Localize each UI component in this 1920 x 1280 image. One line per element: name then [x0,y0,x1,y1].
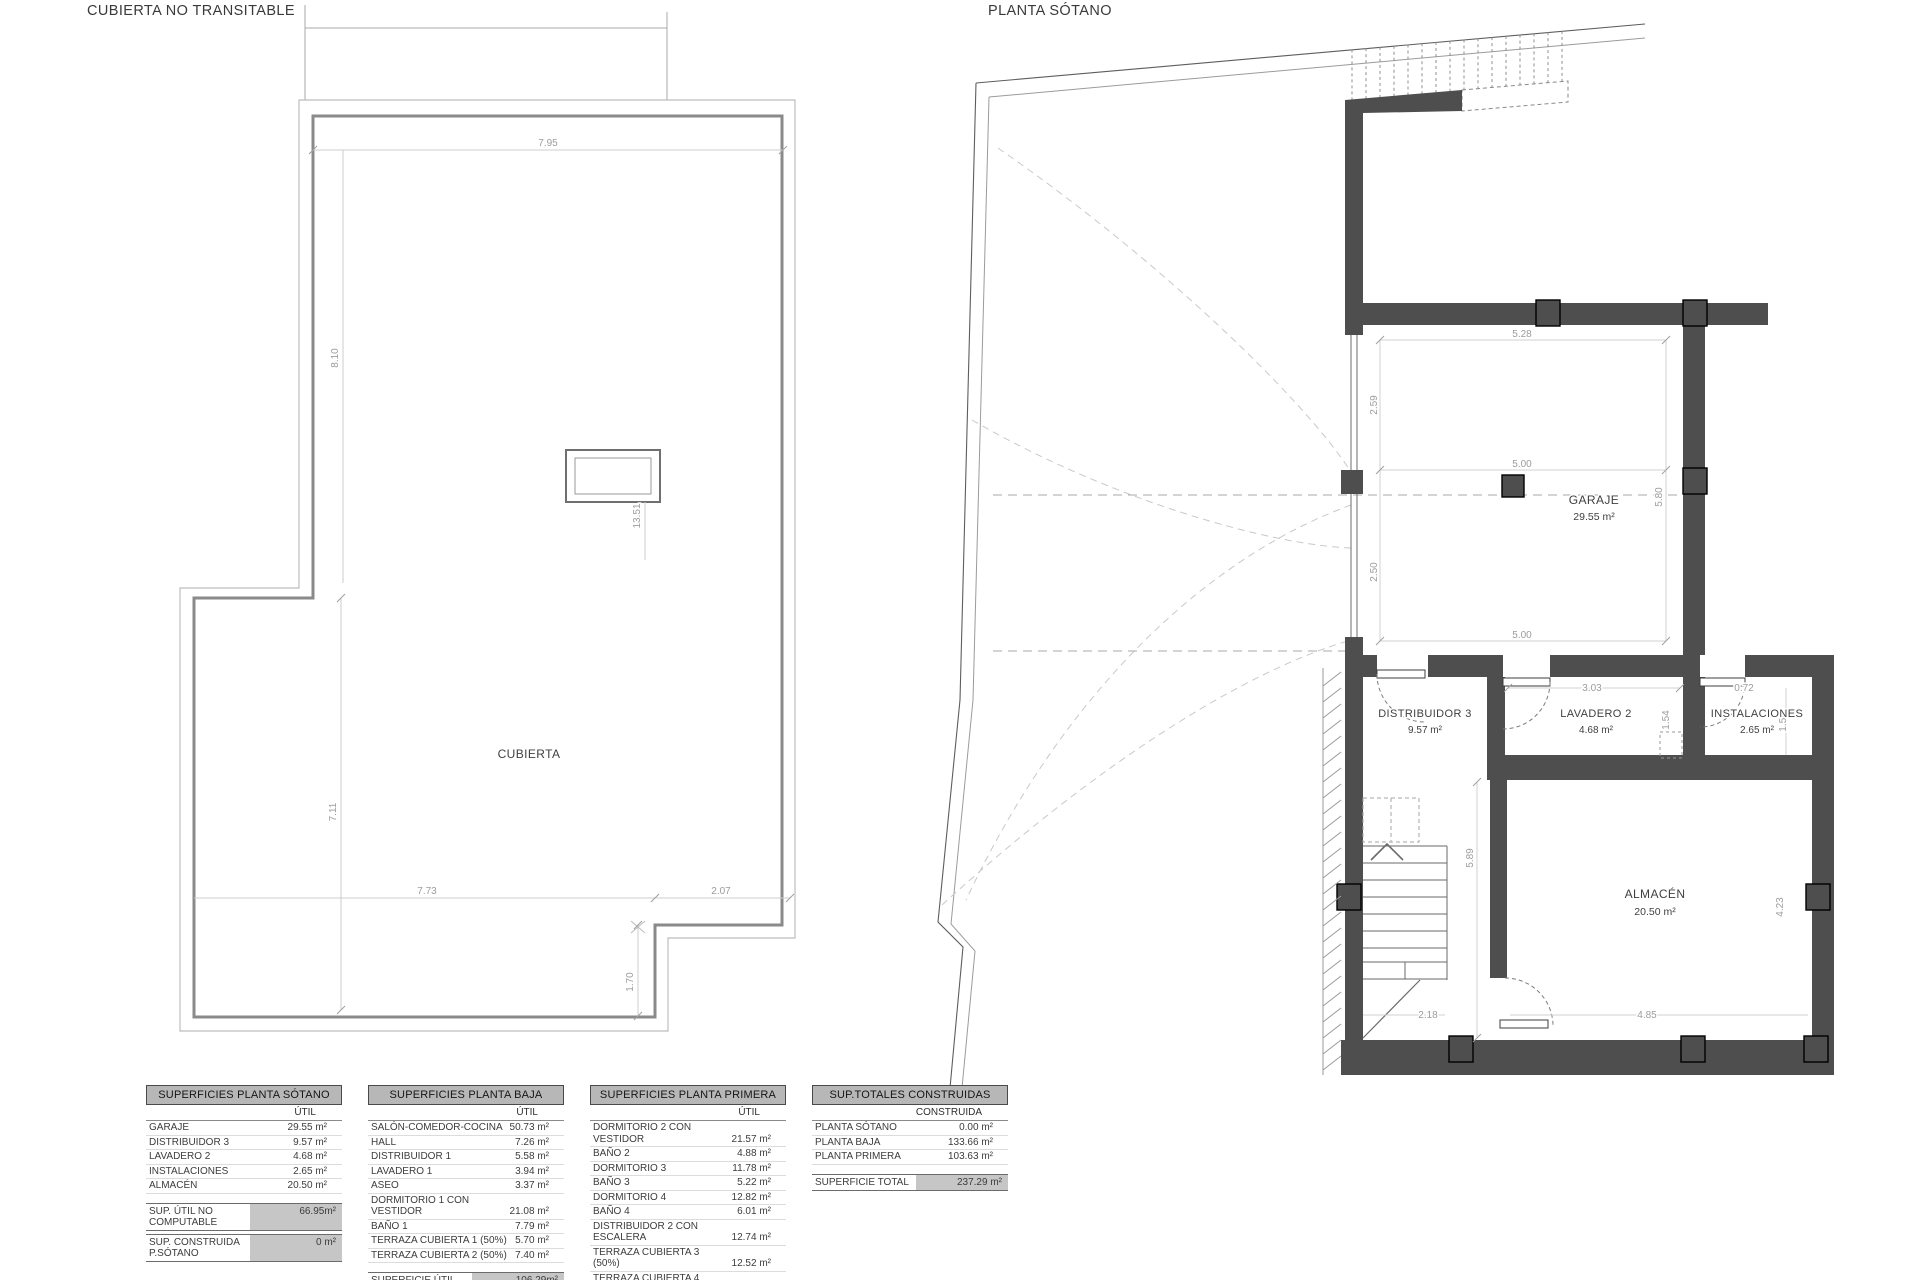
room-area-almacen: 20.50 m² [1634,906,1676,918]
row-label: TERRAZA CUBIERTA 3 (50%) [593,1247,732,1270]
row-label: PLANTA BAJA [815,1137,948,1149]
cubierta-plan: 7.95 8.10 13.51 7.11 7.73 2.07 1.70 CUBI… [180,5,795,1031]
row-label: DORMITORIO 1 CON VESTIDOR [371,1195,510,1218]
dim-label: 2.18 [1418,1010,1438,1021]
table-superficies-planta-baja: SUPERFICIES PLANTA BAJAÚTILSALÓN-COMEDOR… [368,1085,564,1280]
table-total-row: SUPERFICIE TOTAL237.29 m² [812,1174,1008,1191]
appliance-box [1660,732,1682,758]
dim-ticks [309,146,1684,1042]
table-column-header: CONSTRUIDA [812,1105,1008,1121]
table-row: PLANTA SÓTANO0.00 m² [812,1121,1008,1136]
table-row: DORMITORIO 311.78 m² [590,1162,786,1177]
dim-label: 8.10 [330,348,341,368]
row-label: BAÑO 2 [593,1148,737,1160]
row-value: 29.55 m² [288,1122,339,1134]
dim-label: 4.23 [1775,897,1786,917]
row-value: 12.82 m² [732,1192,783,1204]
drawing-sheet: CUBIERTA NO TRANSITABLE PLANTA SÓTANO [0,0,1920,1280]
row-label: DORMITORIO 4 [593,1192,732,1204]
table-row: BAÑO 24.88 m² [590,1147,786,1162]
dim-label: 7.73 [417,886,437,897]
dim-label: 5.80 [1654,487,1665,507]
row-value: 4.68 m² [293,1151,339,1163]
table-column-header: ÚTIL [146,1105,342,1121]
site-boundary [938,24,1645,1088]
table-row: PLANTA BAJA133.66 m² [812,1136,1008,1151]
room-label-almacen: ALMACÉN [1625,886,1686,901]
dim-label: 5.28 [1512,329,1532,340]
driveway-arcs [942,148,1351,905]
table-row: DORMITORIO 2 CON VESTIDOR21.57 m² [590,1121,786,1147]
total-value: 106.29m² [472,1273,564,1280]
total-label: SUPERFICIE ÚTIL P.BAJA [368,1273,472,1280]
dim-label: 5.00 [1512,630,1532,641]
row-label: TERRAZA CUBIERTA 2 (50%) [371,1250,515,1262]
row-value: 5.22 m² [737,1177,783,1189]
table-totals: SUP. ÚTIL NO COMPUTABLE66.95m²SUP. CONST… [146,1203,342,1262]
dim-label: 1.54 [1661,710,1672,730]
row-label: BAÑO 1 [371,1221,515,1233]
row-value: 9.57 m² [293,1137,339,1149]
roof-outline-outer [180,100,795,1031]
row-value: 11.78 m² [732,1163,783,1175]
row-label: ALMACÉN [149,1180,288,1192]
table-row: LAVADERO 24.68 m² [146,1150,342,1165]
table-row: TERRAZA CUBIERTA 4 (50%)12.91 m² [590,1272,786,1280]
room-label-cubierta: CUBIERTA [498,747,561,761]
dim-label: 3.03 [1582,683,1602,694]
table-title: SUPERFICIES PLANTA BAJA [368,1085,564,1105]
row-value: 7.26 m² [515,1137,561,1149]
row-value: 12.52 m² [732,1258,783,1270]
table-row: DISTRIBUIDOR 15.58 m² [368,1150,564,1165]
hatch-band-frame [1462,81,1568,111]
dim-label: 5.00 [1512,459,1532,470]
table-row: PLANTA PRIMERA103.63 m² [812,1150,1008,1165]
room-area-garaje: 29.55 m² [1573,511,1615,523]
row-label: PLANTA PRIMERA [815,1151,948,1163]
row-value: 6.01 m² [737,1206,783,1218]
row-label: GARAJE [149,1122,288,1134]
table-row: BAÑO 35.22 m² [590,1176,786,1191]
row-value: 5.58 m² [515,1151,561,1163]
table-row: ALMACÉN20.50 m² [146,1179,342,1194]
table-total-row: SUP. ÚTIL NO COMPUTABLE66.95m² [146,1203,342,1231]
table-column-header: ÚTIL [368,1105,564,1121]
staircase [1363,798,1447,1038]
row-label: DORMITORIO 3 [593,1163,732,1175]
total-label: SUP. CONSTRUIDA P.SÓTANO [146,1235,250,1261]
table-title: SUP.TOTALES CONSTRUIDAS [812,1085,1008,1105]
total-value: 0 m² [250,1235,342,1261]
row-value: 2.65 m² [293,1166,339,1178]
dim-label: 4.85 [1637,1010,1657,1021]
skylight [566,450,660,502]
row-value: 50.73 m² [510,1122,561,1134]
table-row: ASEO3.37 m² [368,1179,564,1194]
table-totals: SUPERFICIE ÚTIL P.BAJA106.29m²SUP. CONST… [368,1272,564,1280]
table-row: HALL7.26 m² [368,1136,564,1151]
row-value: 4.88 m² [737,1148,783,1160]
table-totals: SUPERFICIE TOTAL237.29 m² [812,1174,1008,1191]
row-value: 20.50 m² [288,1180,339,1192]
table-row: TERRAZA CUBIERTA 3 (50%)12.52 m² [590,1246,786,1272]
table-column-header: ÚTIL [590,1105,786,1121]
table-sup-totales-construidas: SUP.TOTALES CONSTRUIDASCONSTRUIDAPLANTA … [812,1085,1008,1194]
row-value: 21.08 m² [510,1206,561,1218]
table-total-row: SUP. CONSTRUIDA P.SÓTANO0 m² [146,1234,342,1262]
row-label: ASEO [371,1180,515,1192]
row-label: DORMITORIO 2 CON VESTIDOR [593,1122,732,1145]
table-row: TERRAZA CUBIERTA 2 (50%)7.40 m² [368,1249,564,1264]
room-area-lavadero2: 4.68 m² [1579,725,1614,736]
table-title: SUPERFICIES PLANTA SÓTANO [146,1085,342,1105]
row-label: BAÑO 4 [593,1206,737,1218]
table-row: DORMITORIO 412.82 m² [590,1191,786,1206]
total-value: 66.95m² [250,1204,342,1230]
row-label: DISTRIBUIDOR 2 CON ESCALERA [593,1221,732,1244]
row-label: SALÓN-COMEDOR-COCINA [371,1122,510,1134]
row-value: 21.57 m² [732,1134,783,1146]
walls [1341,90,1834,1075]
row-label: BAÑO 3 [593,1177,737,1189]
row-value: 12.74 m² [732,1232,783,1244]
room-label-garaje: GARAJE [1569,493,1619,507]
table-title: SUPERFICIES PLANTA PRIMERA [590,1085,786,1105]
row-value: 7.40 m² [515,1250,561,1262]
row-value: 0.00 m² [959,1122,1005,1134]
table-superficies-planta-sotano: SUPERFICIES PLANTA SÓTANOÚTILGARAJE29.55… [146,1085,342,1265]
row-value: 103.63 m² [948,1151,1005,1163]
dim-label: 0.72 [1734,683,1754,694]
exterior-wall-hatch [1323,668,1341,1075]
row-value: 7.79 m² [515,1221,561,1233]
dim-label: 1.70 [625,972,636,992]
cubierta-dim-lines [194,150,790,1016]
dim-label: 2.07 [711,886,731,897]
roof-outline-inner [194,116,782,1017]
table-superficies-planta-primera: SUPERFICIES PLANTA PRIMERAÚTILDORMITORIO… [590,1085,786,1280]
row-value: 5.70 m² [515,1235,561,1247]
total-label: SUPERFICIE TOTAL [812,1175,916,1190]
row-value: 3.37 m² [515,1180,561,1192]
row-label: DISTRIBUIDOR 3 [149,1137,293,1149]
roof-bulkhead [305,5,667,100]
dim-label: 2.50 [1369,562,1380,582]
table-row: DISTRIBUIDOR 39.57 m² [146,1136,342,1151]
dim-label: 5.89 [1465,848,1476,868]
dim-label: 7.95 [538,138,558,149]
row-label: HALL [371,1137,515,1149]
table-row: BAÑO 17.79 m² [368,1220,564,1235]
row-value: 133.66 m² [948,1137,1005,1149]
table-row: BAÑO 46.01 m² [590,1205,786,1220]
dim-label: 7.11 [328,802,339,821]
table-row: DORMITORIO 1 CON VESTIDOR21.08 m² [368,1194,564,1220]
table-row: TERRAZA CUBIERTA 1 (50%)5.70 m² [368,1234,564,1249]
room-label-instalaciones: INSTALACIONES [1711,708,1803,720]
dim-label: 2.59 [1369,395,1380,415]
room-area-instalaciones: 2.65 m² [1740,725,1775,736]
row-label: INSTALACIONES [149,1166,293,1178]
row-label: DISTRIBUIDOR 1 [371,1151,515,1163]
room-area-distribuidor3: 9.57 m² [1408,725,1443,736]
table-row: GARAJE29.55 m² [146,1121,342,1136]
table-row: INSTALACIONES2.65 m² [146,1165,342,1180]
sotano-plan: 5.28 2.59 5.00 2.50 5.00 5.80 3.03 1.54 … [309,24,1834,1088]
table-row: LAVADERO 13.94 m² [368,1165,564,1180]
table-row: SALÓN-COMEDOR-COCINA50.73 m² [368,1121,564,1136]
room-label-lavadero2: LAVADERO 2 [1560,708,1631,720]
total-value: 237.29 m² [916,1175,1008,1190]
room-label-distribuidor3: DISTRIBUIDOR 3 [1378,708,1472,720]
row-label: TERRAZA CUBIERTA 4 (50%) [593,1273,732,1280]
row-label: LAVADERO 2 [149,1151,293,1163]
row-label: PLANTA SÓTANO [815,1122,959,1134]
row-value: 3.94 m² [515,1166,561,1178]
dim-label: 13.51 [632,503,643,528]
row-label: LAVADERO 1 [371,1166,515,1178]
total-label: SUP. ÚTIL NO COMPUTABLE [146,1204,250,1230]
table-row: DISTRIBUIDOR 2 CON ESCALERA12.74 m² [590,1220,786,1246]
row-label: TERRAZA CUBIERTA 1 (50%) [371,1235,515,1247]
table-total-row: SUPERFICIE ÚTIL P.BAJA106.29m² [368,1272,564,1280]
